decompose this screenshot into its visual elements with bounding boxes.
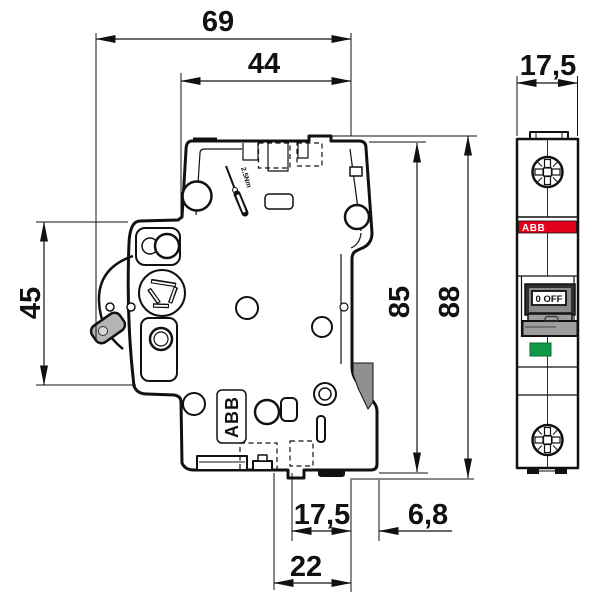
rivet-center: [236, 297, 258, 319]
rivet-top-right: [345, 205, 369, 229]
switch-state-label: 0 OFF: [536, 294, 563, 305]
rivet-mid-right: [312, 317, 332, 337]
top-notch: [193, 138, 217, 143]
side-view: 2.5Nm ABB: [88, 136, 377, 478]
front-view: ABB 0 OFF: [517, 132, 578, 474]
latch-tab: [281, 398, 297, 421]
back-window: [350, 167, 362, 176]
rail-pin-hole: [340, 303, 348, 311]
front-brand-label: ABB: [522, 223, 545, 234]
clip-tongue: [318, 470, 345, 477]
dim-front-height: 45: [15, 287, 47, 319]
dimension-drawing: 2.5Nm ABB: [0, 0, 600, 600]
dim-body-depth: 44: [248, 48, 280, 80]
dim-front-width: 17,5: [520, 50, 576, 82]
rivet-top-left: [183, 182, 212, 211]
terminal-screw-bottom: [533, 425, 563, 455]
drawing-canvas: 2.5Nm ABB: [0, 0, 600, 600]
fixed-claw-bump: [258, 455, 267, 461]
dim-total-depth: 69: [202, 6, 234, 38]
side-brand-label: ABB: [222, 396, 242, 438]
rivet-bottom-left: [183, 393, 205, 415]
rivet-bottom-mid: [255, 400, 279, 424]
dim-clip-span: 22: [290, 551, 322, 583]
lock-hole-large: [155, 234, 179, 258]
terminal-screw-top: [533, 157, 563, 187]
pivot-ring-inner: [319, 388, 331, 400]
dim-total-height: 88: [434, 286, 466, 318]
status-indicator: [530, 343, 551, 356]
terminal-screw-slot: [265, 194, 293, 209]
dim-body-height: 85: [384, 286, 416, 318]
mechanism-circle: [139, 270, 185, 316]
front-toggle-switch: 0 OFF: [523, 284, 578, 336]
lower-panel-hole: [150, 328, 172, 350]
vent-slot: [317, 416, 325, 442]
fixed-claw: [253, 461, 272, 470]
dim-rail-offset: 6,8: [408, 499, 448, 531]
dim-rail-width: 17,5: [294, 499, 350, 531]
